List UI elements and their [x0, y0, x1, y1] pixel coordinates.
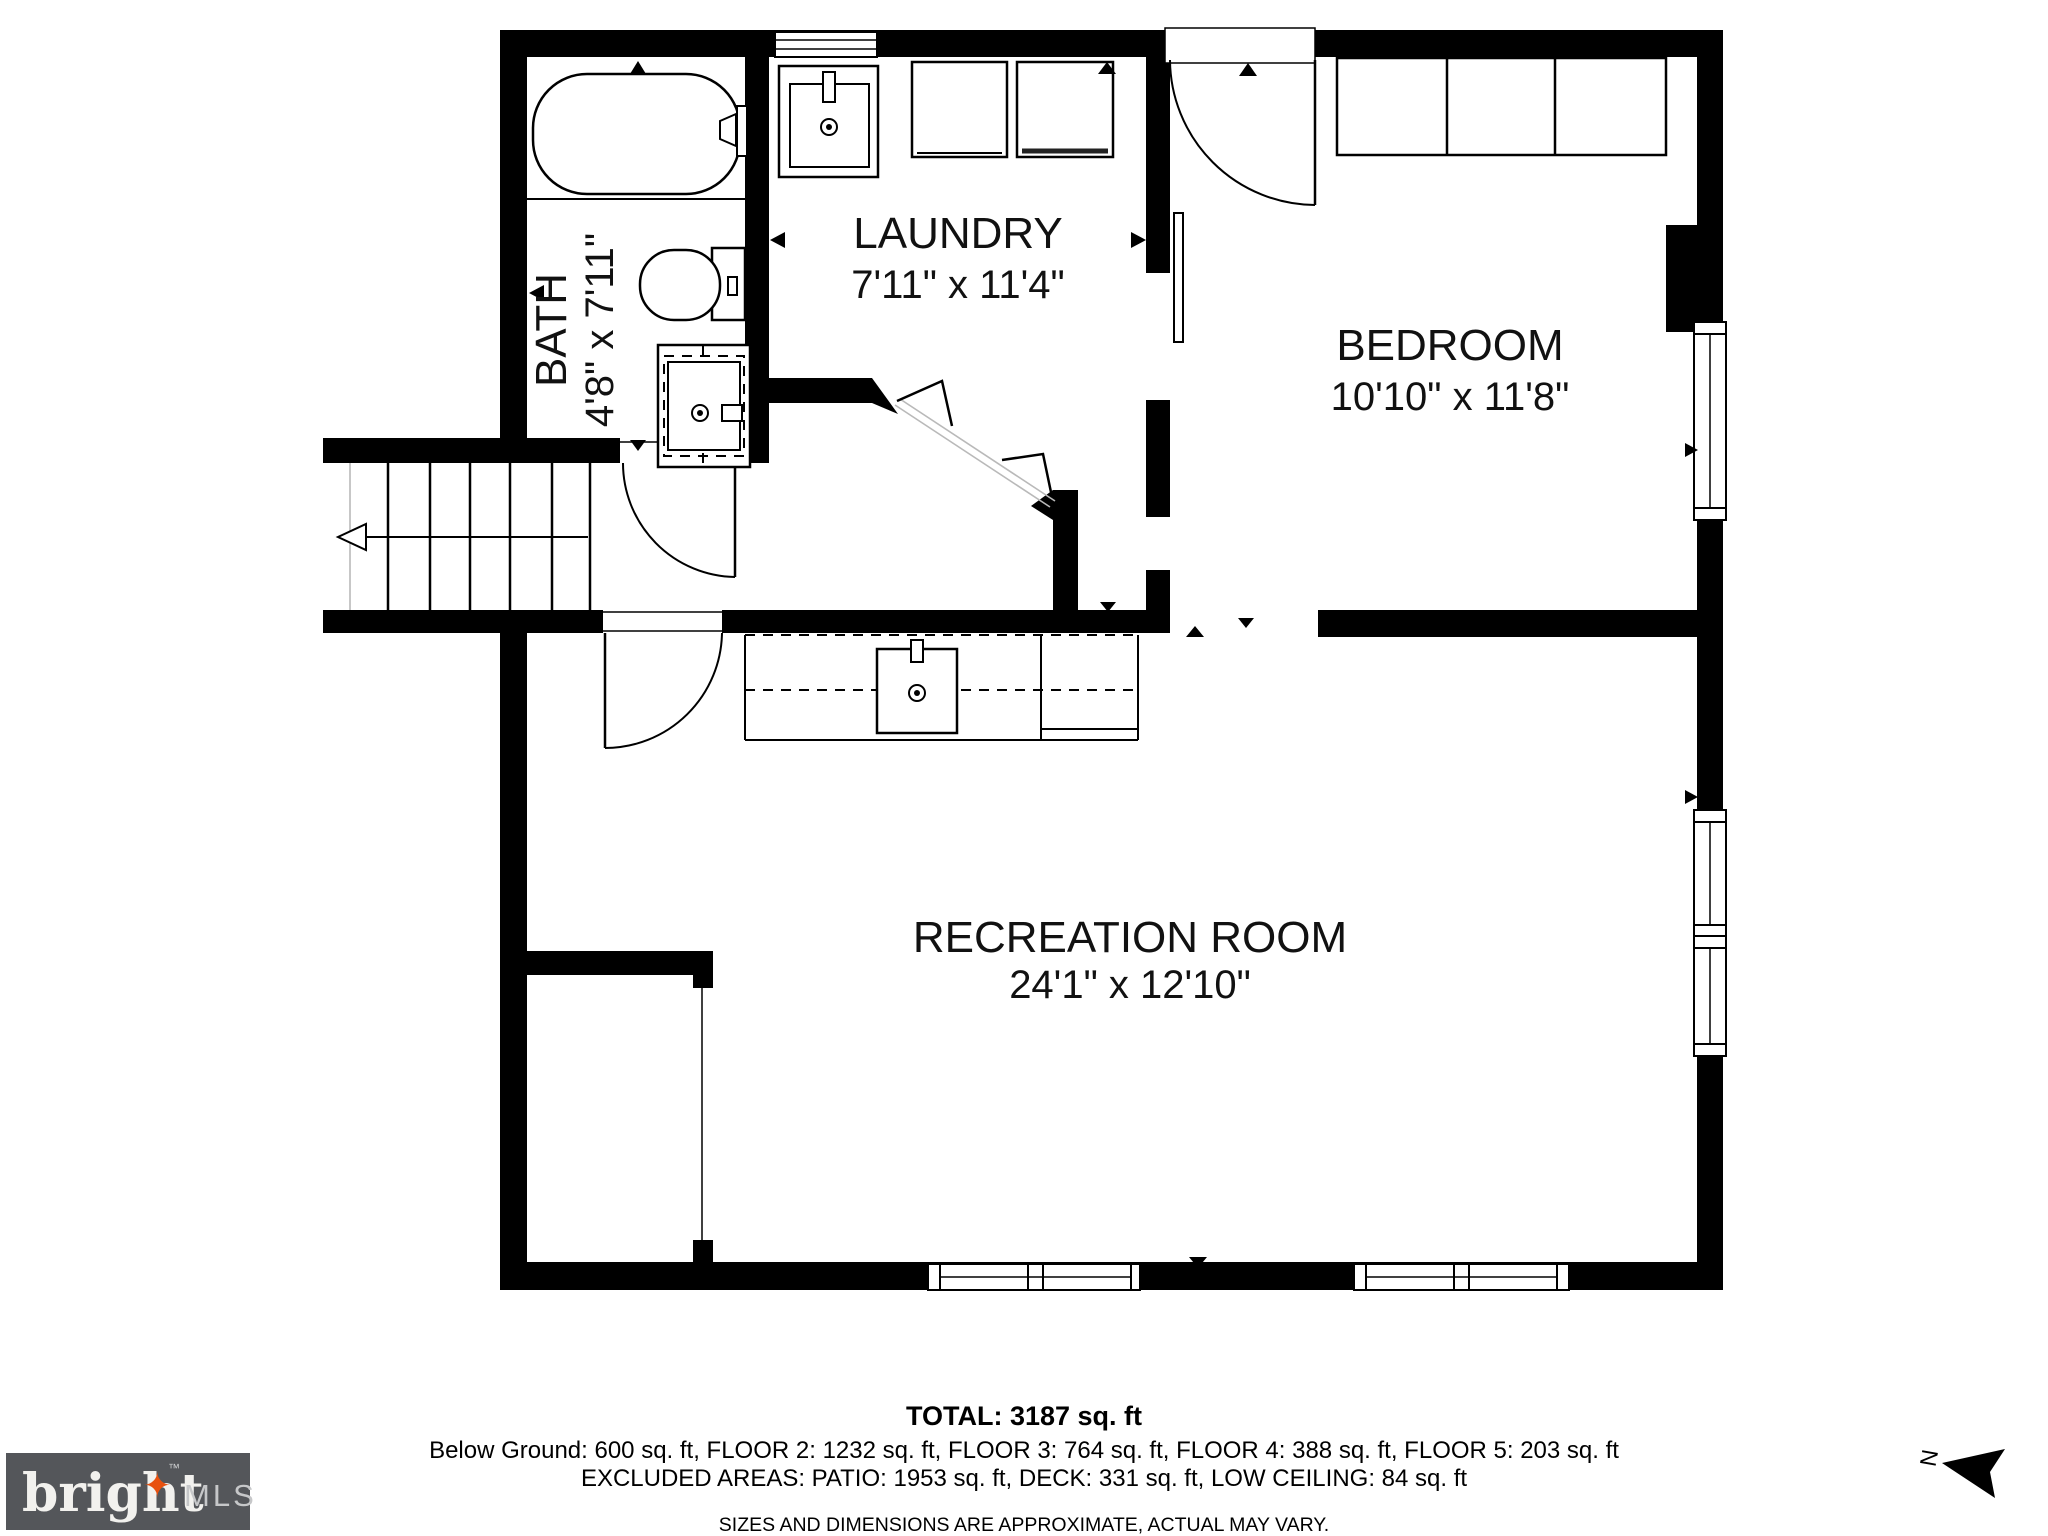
floor-plan: BATH 4'8" x 7'11" LAUNDRY 7'11" x 11'4" … [0, 0, 2048, 1536]
room-dims-laundry: 7'11" x 11'4" [851, 263, 1064, 307]
floor-plan-page: BATH 4'8" x 7'11" LAUNDRY 7'11" x 11'4" … [0, 0, 2048, 1536]
dimension-markers [529, 61, 1698, 1268]
brightmls-logo: bright ✦ ™ MLS [6, 1453, 257, 1530]
floor-areas-text: Below Ground: 600 sq. ft, FLOOR 2: 1232 … [429, 1437, 1619, 1464]
room-label-recreation: RECREATION ROOM [913, 913, 1347, 962]
washer [912, 62, 1007, 157]
recreation-door [605, 633, 722, 748]
stairs [338, 463, 590, 610]
toilet [640, 248, 745, 320]
bedroom-pocket-door [1174, 213, 1183, 342]
dryer [1017, 62, 1113, 157]
laundry-bifold-doors [895, 381, 1055, 507]
room-label-bedroom: BEDROOM [1336, 321, 1563, 370]
bedroom-entry-door [1170, 60, 1315, 205]
bedroom-window [1694, 322, 1726, 520]
recreation-counter-sink [745, 635, 1138, 740]
north-label: N [1915, 1448, 1943, 1469]
room-dims-recreation: 24'1" x 12'10" [1009, 963, 1251, 1007]
stair-direction-arrow [338, 524, 588, 550]
excluded-areas-text: EXCLUDED AREAS: PATIO: 1953 sq. ft, DECK… [581, 1465, 1467, 1492]
logo-trademark: ™ [168, 1461, 180, 1475]
bedroom-closet [1337, 58, 1666, 155]
area-summary: TOTAL: 3187 sq. ft Below Ground: 600 sq.… [429, 1401, 1619, 1536]
room-dims-bedroom: 10'10" x 11'8" [1331, 375, 1570, 419]
north-arrow: N [1915, 1448, 2005, 1498]
disclaimer-text: SIZES AND DIMENSIONS ARE APPROXIMATE, AC… [719, 1514, 1329, 1536]
room-dims-bath: 4'8" x 7'11" [578, 233, 622, 427]
recreation-side-windows [1694, 810, 1726, 1056]
logo-mls-text: MLS [184, 1478, 257, 1513]
bathtub [533, 74, 747, 194]
bath-vanity-sink [658, 345, 750, 467]
laundry-sink [779, 66, 878, 177]
north-arrow-icon [1942, 1449, 2005, 1498]
room-labels: BATH 4'8" x 7'11" LAUNDRY 7'11" x 11'4" … [527, 209, 1569, 1007]
room-label-laundry: LAUNDRY [853, 209, 1062, 258]
total-area-text: TOTAL: 3187 sq. ft [906, 1401, 1142, 1431]
hall-door [623, 463, 735, 577]
laundry-window [775, 32, 877, 57]
exterior-walls [500, 30, 1723, 1290]
room-label-bath: BATH [527, 273, 576, 387]
